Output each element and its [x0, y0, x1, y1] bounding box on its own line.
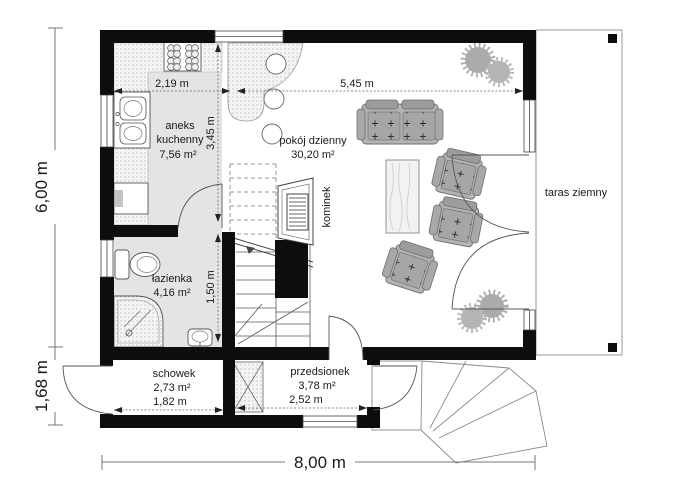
wardrobe	[233, 362, 263, 412]
shower	[114, 296, 163, 347]
terrace-post	[608, 34, 617, 43]
window-top	[215, 31, 283, 42]
room-label-storage: schowek	[153, 368, 196, 380]
wall-annex-left	[100, 360, 113, 366]
dim-main-depth: 6,00 m	[32, 161, 51, 213]
room-area-living: 30,20 m²	[291, 149, 335, 161]
floor-plan: 2,19 m 5,45 m 3,45 m 1,50 m 1,82 m 2,52 …	[0, 0, 698, 500]
armchair	[380, 237, 441, 295]
room-label-living: pokój dzienny	[279, 135, 347, 147]
sofa	[357, 100, 443, 144]
window-left-kitchen	[101, 95, 113, 147]
dim-vestibule-width: 2,52 m	[289, 394, 323, 406]
plant	[465, 47, 510, 83]
room-label-vestibule: przedsionek	[290, 366, 350, 378]
wall-main-bottom	[100, 347, 329, 360]
terrace-post	[608, 343, 617, 352]
dim-overall-width: 8,00 m	[294, 453, 346, 472]
room-label-kitchen: kuchenny	[156, 134, 204, 146]
wall-kitchen-bath	[100, 225, 178, 237]
window-right-upper	[524, 100, 535, 152]
wall-left	[100, 30, 114, 95]
fireplace-label: kominek	[321, 186, 333, 227]
wash-basin	[188, 329, 212, 346]
room-area-kitchen: 7,56 m²	[159, 149, 197, 161]
room-area-vestibule: 3,78 m²	[298, 380, 336, 392]
wall-vestibule-right	[367, 360, 380, 365]
room-label-kitchen: aneks	[165, 120, 195, 132]
entry-steps	[421, 361, 547, 463]
wall-right	[523, 30, 536, 100]
bar-stool	[266, 54, 286, 74]
room-area-storage: 2,73 m²	[153, 382, 191, 394]
window-left-bathroom	[101, 240, 113, 277]
dim-living-width: 5,45 m	[340, 78, 374, 90]
wall-annex-bottom	[100, 415, 303, 428]
bar-stool	[264, 89, 284, 109]
kitchen-appliance	[114, 183, 148, 214]
fireplace-grate	[287, 194, 308, 230]
bar-counter	[228, 43, 303, 121]
armchair	[430, 146, 489, 201]
dim-bathroom-depth: 1,50 m	[205, 270, 217, 304]
coffee-table	[386, 160, 419, 233]
chimney	[275, 240, 308, 298]
plant	[461, 294, 504, 329]
wall-main-bottom	[363, 347, 536, 360]
window-bottom-vestibule	[303, 416, 357, 427]
wall-top-right	[283, 30, 536, 43]
fireplace	[278, 178, 313, 245]
wall-bath-stairs	[222, 232, 235, 347]
dim-annex-depth: 1,68 m	[32, 360, 51, 412]
room-label-bathroom: łazienka	[152, 273, 193, 285]
door-living-vestibule	[329, 316, 363, 360]
stairs-direction-arrow	[246, 246, 255, 254]
kitchen-sink	[114, 92, 150, 148]
floor-plan-drawing: 2,19 m 5,45 m 3,45 m 1,50 m 1,82 m 2,52 …	[0, 0, 698, 500]
room-area-bathroom: 4,16 m²	[153, 287, 191, 299]
wall-top-left	[100, 30, 215, 43]
wall-storage-vestibule	[223, 360, 235, 415]
armchair	[428, 195, 486, 249]
stove	[164, 42, 201, 71]
dim-kitchen-depth: 3,45 m	[205, 116, 217, 150]
dim-storage-width: 1,82 m	[153, 396, 187, 408]
window-right-lower	[524, 310, 535, 330]
door-storage-exterior	[63, 366, 112, 414]
dim-kitchen-width: 2,19 m	[155, 78, 189, 90]
terrace-label: taras ziemny	[545, 187, 608, 199]
porch-steps	[372, 361, 547, 463]
stairs-upper-dashed	[230, 164, 276, 238]
